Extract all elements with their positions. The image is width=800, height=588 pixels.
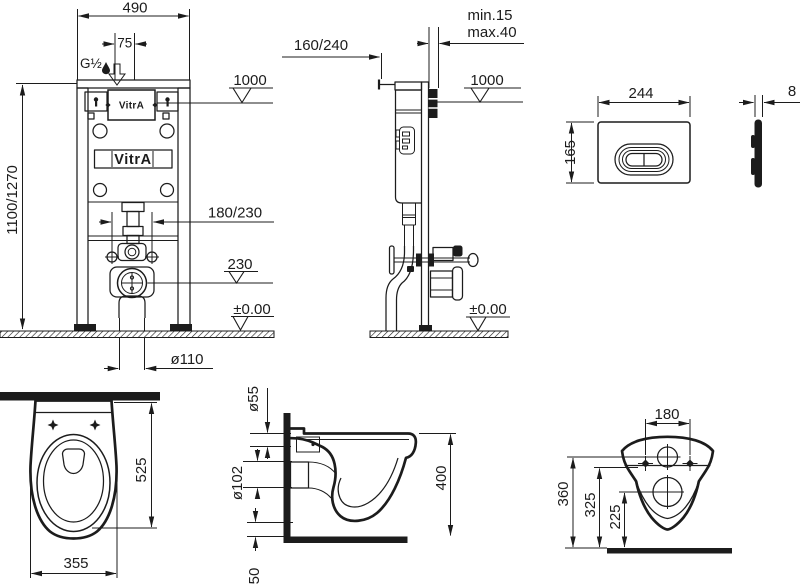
cistern-logo-text: VitrA (119, 101, 144, 112)
frame-hole (161, 184, 174, 197)
label-wall-max: max.40 (467, 24, 516, 41)
level-triangle-icon (229, 272, 244, 284)
level-floor-front: ±0.00 (233, 301, 270, 318)
flush-bend-housing (118, 244, 146, 261)
installation-drawing: 490 75 G½ 1000 1100/1270 VitrA (0, 0, 800, 588)
drain-pipe-lines (120, 318, 145, 370)
dual-flush-button (615, 144, 673, 175)
frame-left-rail (77, 88, 88, 327)
label-inlet-thread: G½ (80, 56, 102, 71)
pan-outline-top (30, 401, 116, 539)
water-drop-icon (102, 62, 110, 74)
flush-plate-side-view: 8 (739, 83, 800, 188)
cross-member (88, 236, 178, 241)
cistern-access-box: VitrA (85, 90, 178, 120)
dim-frame-width: 490 (122, 0, 147, 17)
frame-left-foot (74, 324, 96, 331)
outlet-stub-detail (291, 462, 337, 498)
frame-top-rail (77, 80, 190, 88)
frame-front-view: 490 75 G½ 1000 1100/1270 VitrA (0, 0, 274, 370)
dim-inlet-diameter: ø55 (245, 386, 262, 412)
dim-bolt-hole-spacing: 180 (654, 406, 679, 423)
pan-side-view: ø55 ø102 400 50 (229, 386, 456, 584)
flush-pipe-side (403, 203, 416, 246)
dim-plate-height: 165 (562, 140, 579, 165)
level-triangle-icon (233, 88, 251, 103)
level-triangle-icon (471, 88, 489, 102)
level-triangle-icon (470, 317, 486, 331)
level-1000-front: 1000 (233, 72, 266, 89)
wall-bracket (429, 89, 438, 118)
plate-clip (751, 158, 755, 175)
pan-rear-view: 180 360 325 225 (555, 406, 732, 554)
dim-pan-depth: 525 (133, 457, 150, 482)
dim-outlet-height: 225 (607, 504, 624, 529)
flush-plate-front-view: 244 165 (562, 85, 690, 183)
label-wall-min: min.15 (467, 7, 512, 24)
fixing-bolt-left (105, 250, 119, 264)
dim-rim-height: 400 (433, 465, 450, 490)
ground-hatch-side (370, 331, 508, 338)
plate-logo-text: VitrA (114, 152, 151, 168)
flush-plate-body (598, 122, 690, 183)
frame-side-view: 160/240 min.15 max.40 1000 (282, 7, 524, 338)
level-230: 230 (227, 256, 252, 273)
waste-stub-side (431, 267, 463, 300)
dim-outlet-diameter: ø102 (229, 466, 246, 500)
frame-hole (160, 124, 174, 138)
floor-section-bar (607, 548, 732, 554)
dim-inlet-offset: 75 (117, 36, 132, 51)
floor-section-bar (284, 537, 408, 544)
frame-top-rail-side (395, 82, 422, 90)
plate-clip (751, 135, 755, 148)
dim-frame-depth: 160/240 (294, 37, 348, 54)
waste-outlet-front (110, 267, 154, 298)
ground-hatch-front (0, 331, 274, 338)
frame-hole (94, 184, 107, 197)
pan-top-view: 525 355 (0, 392, 160, 578)
level-floor-side: ±0.00 (469, 301, 506, 318)
dim-inlet-height: 360 (555, 481, 572, 506)
plate-profile (755, 120, 763, 188)
frame-hole (93, 124, 107, 138)
dim-outlet-offset: 50 (246, 568, 263, 585)
dim-pan-width: 355 (63, 555, 88, 572)
technical-drawing-sheet: 490 75 G½ 1000 1100/1270 VitrA (0, 0, 800, 588)
drain-elbow (386, 246, 414, 331)
dim-plate-width: 244 (628, 85, 653, 102)
frame-post-side (422, 82, 429, 327)
logo-plate: VitrA (95, 150, 173, 168)
dim-frame-height: 1100/1270 (4, 165, 21, 235)
fill-valve-detail (396, 127, 415, 154)
flush-pipe-front (122, 203, 144, 244)
level-triangle-icon (233, 317, 248, 331)
frame-right-rail (178, 88, 190, 327)
fixing-bolt-right (145, 250, 159, 264)
water-inlet-arrow-icon (109, 64, 125, 85)
water-inlet-side (379, 80, 395, 90)
dim-bolt-height: 325 (582, 492, 599, 517)
dim-drain-diameter: ø110 (170, 351, 203, 368)
dim-bolt-spacing: 180/230 (208, 205, 262, 222)
wall-section-bar (284, 413, 291, 543)
level-1000-side: 1000 (470, 72, 503, 89)
drain-spigot (119, 296, 145, 318)
frame-right-foot (170, 324, 192, 331)
dim-plate-thickness: 8 (788, 83, 796, 100)
